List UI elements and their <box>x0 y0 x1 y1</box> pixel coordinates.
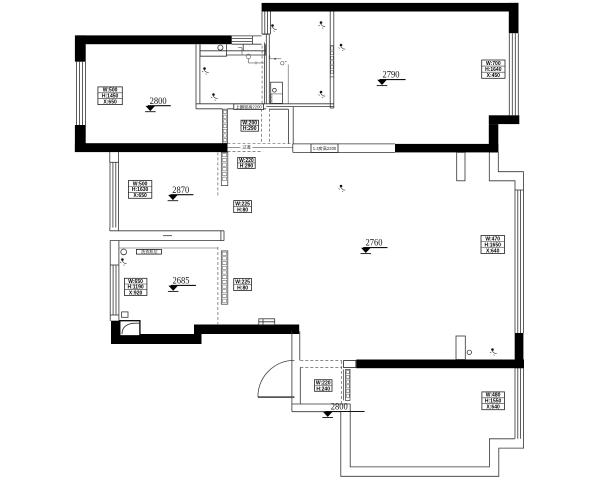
svg-text:X:650: X:650 <box>103 99 117 105</box>
svg-text:H:1640: H:1640 <box>485 67 502 73</box>
svg-text:1.3房高2200: 1.3房高2200 <box>313 145 337 152</box>
svg-text:H:290: H:290 <box>240 163 254 169</box>
svg-text:洗衣机位: 洗衣机位 <box>141 248 158 255</box>
svg-text:X:920: X:920 <box>129 290 143 296</box>
svg-text:X:650: X:650 <box>133 193 147 199</box>
svg-text:上翻梁高2200: 上翻梁高2200 <box>236 103 263 110</box>
svg-text:H:80: H:80 <box>237 286 248 292</box>
svg-text:X:640: X:640 <box>486 405 500 411</box>
svg-text:过道: 过道 <box>242 144 251 151</box>
svg-text:H:240: H:240 <box>316 386 330 392</box>
svg-text:X:450: X:450 <box>487 73 501 79</box>
svg-text:H:290: H:290 <box>243 126 257 132</box>
svg-text:W:700: W:700 <box>486 61 501 67</box>
svg-text:H:80: H:80 <box>237 208 248 214</box>
svg-text:X:640: X:640 <box>486 248 500 254</box>
